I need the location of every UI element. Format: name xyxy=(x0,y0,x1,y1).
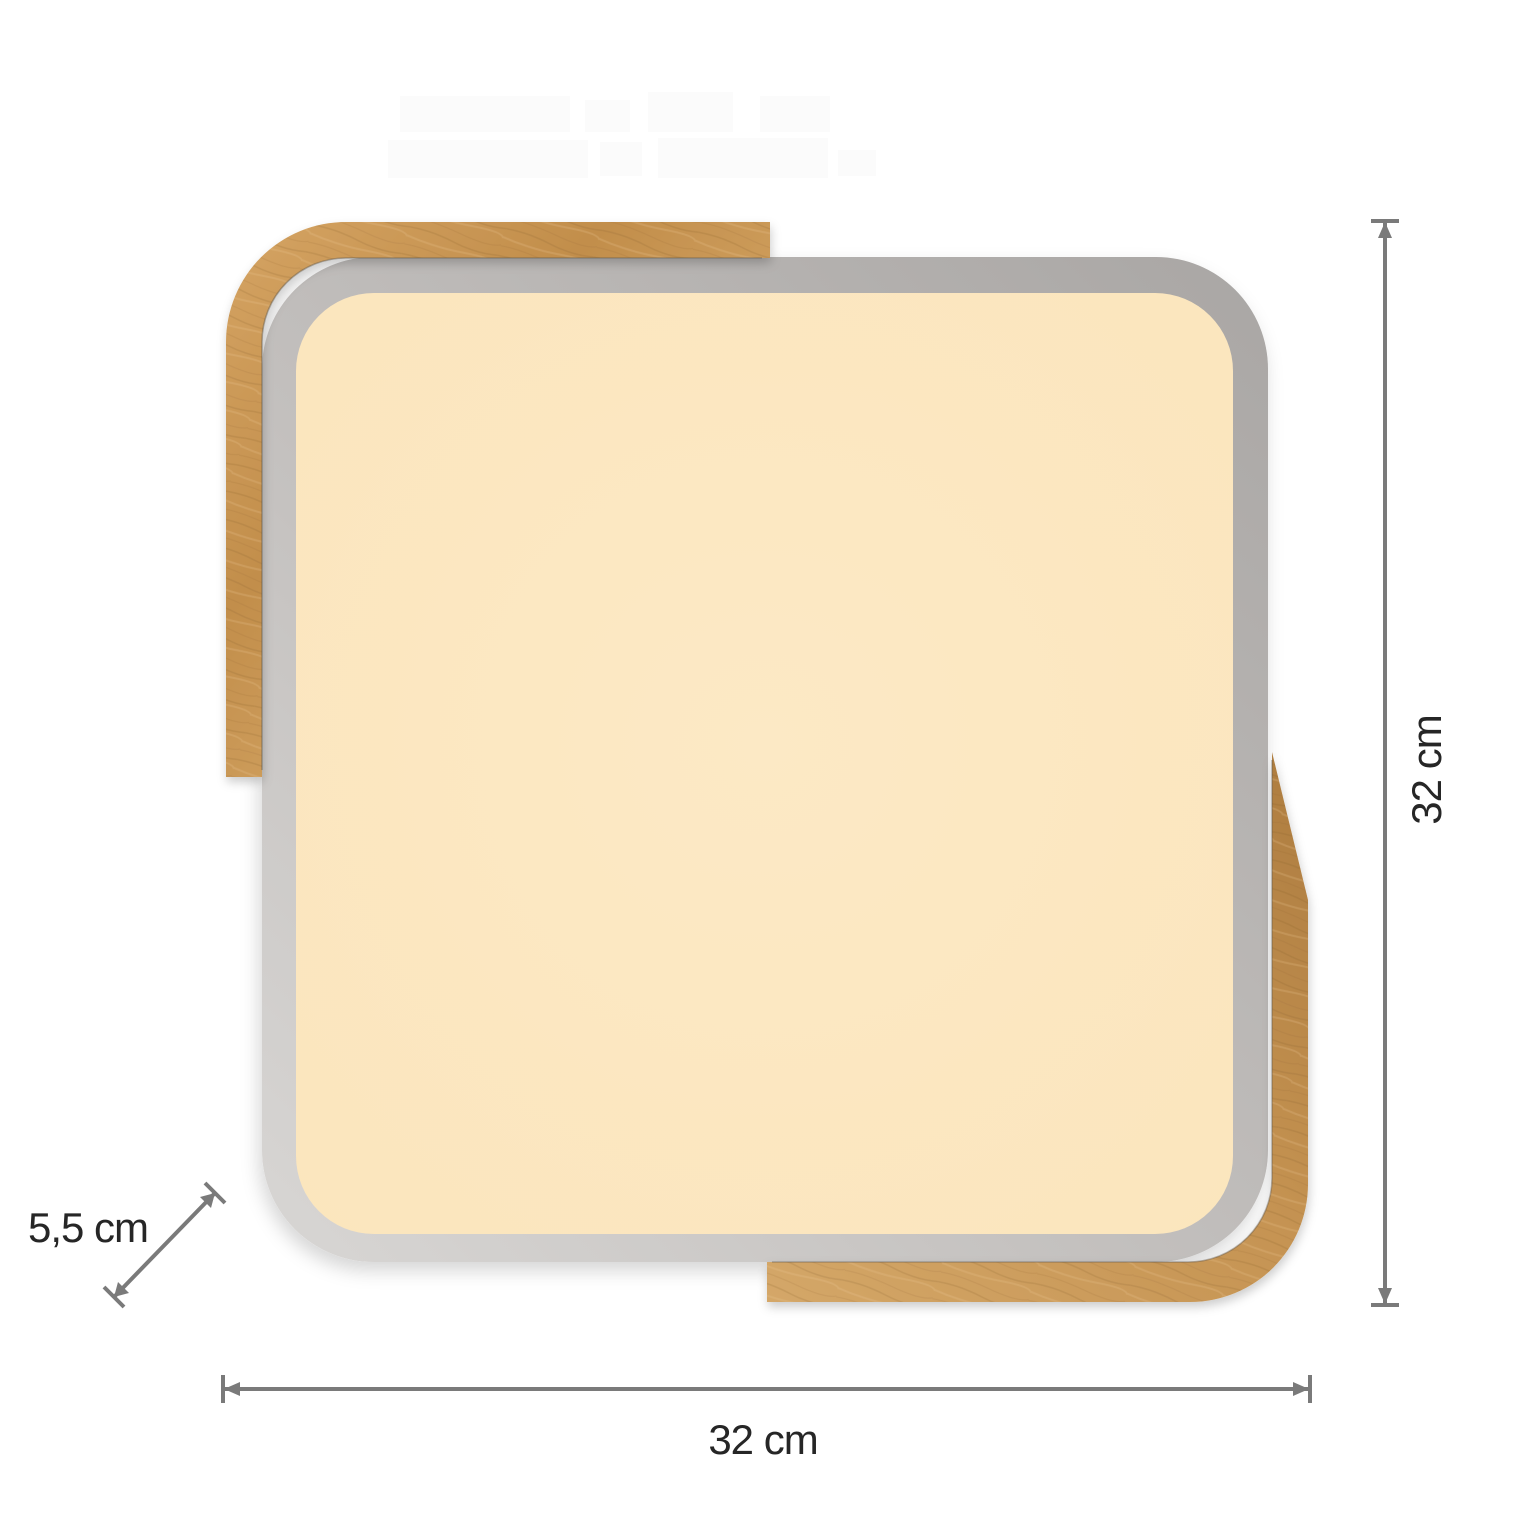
height-dimension-bottom-arrowhead xyxy=(1378,1288,1392,1304)
light-panel xyxy=(296,293,1233,1234)
watermark-block xyxy=(760,96,830,132)
watermark-block xyxy=(388,140,588,178)
width-dimension-label: 32 cm xyxy=(663,1416,863,1464)
watermark-artifact xyxy=(388,92,876,178)
lamp-illustration xyxy=(0,0,1540,1540)
watermark-block xyxy=(600,142,642,176)
height-dimension-top-arrowhead xyxy=(1378,222,1392,238)
width-dimension-right-arrowhead xyxy=(1293,1382,1309,1396)
height-dimension-arrow xyxy=(1371,221,1399,1305)
width-dimension-left-arrowhead xyxy=(224,1382,240,1396)
watermark-block xyxy=(838,150,876,176)
height-dimension-label: 32 cm xyxy=(1403,710,1451,830)
watermark-block xyxy=(648,92,733,132)
depth-dimension-label: 5,5 cm xyxy=(26,1204,150,1252)
watermark-block xyxy=(400,96,570,132)
watermark-block xyxy=(658,138,828,178)
width-dimension-arrow xyxy=(223,1375,1310,1403)
product-dimension-diagram: 32 cm 32 cm 5,5 cm xyxy=(0,0,1540,1540)
watermark-block xyxy=(585,100,630,132)
